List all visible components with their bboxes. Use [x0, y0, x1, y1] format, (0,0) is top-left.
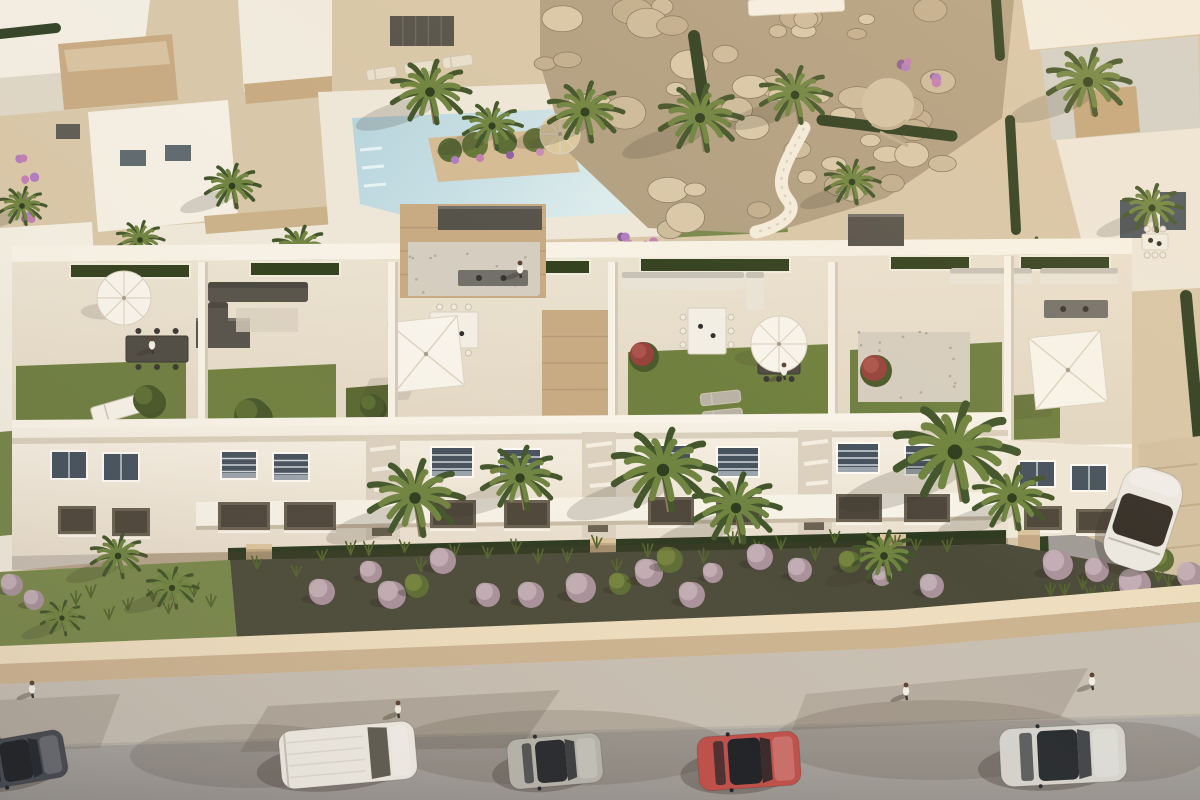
- aerial-render: Aerial 3D architectural rendering of a w…: [0, 0, 1200, 800]
- render-canvas: Aerial 3D architectural rendering of a w…: [0, 0, 1200, 800]
- warm-light-overlay: [0, 0, 1200, 800]
